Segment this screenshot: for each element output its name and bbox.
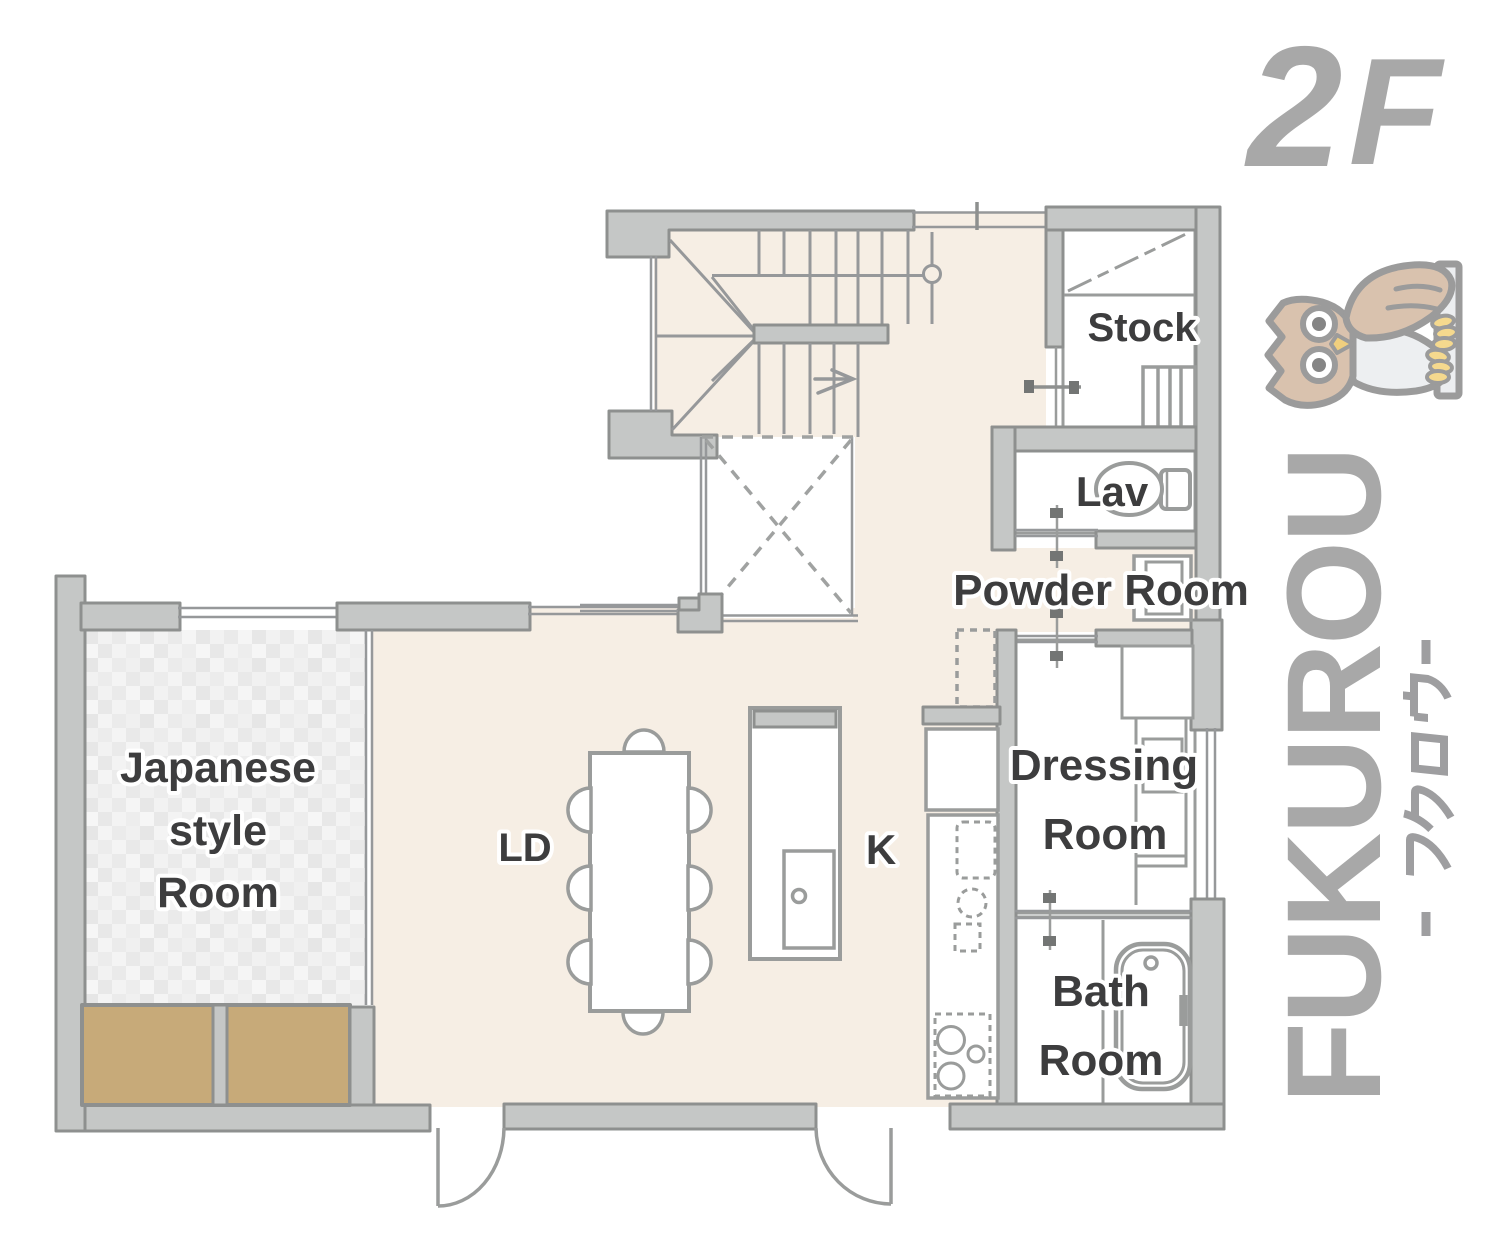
svg-text:Bath: Bath — [1052, 967, 1150, 1016]
svg-text:Dressing: Dressing — [1010, 741, 1198, 790]
svg-text:2F: 2F — [1244, 11, 1448, 203]
svg-text:FUKUROU: FUKUROU — [1260, 448, 1409, 1104]
svg-text:Powder Room: Powder Room — [953, 566, 1249, 615]
svg-text:Room: Room — [1039, 1036, 1164, 1085]
svg-text:Lav: Lav — [1076, 468, 1149, 515]
svg-text:K: K — [866, 826, 896, 873]
svg-text:Japanese: Japanese — [120, 744, 316, 792]
svg-text:LD: LD — [498, 826, 551, 870]
svg-text:Room: Room — [1043, 810, 1168, 859]
svg-text:style: style — [169, 807, 267, 855]
svg-text:Room: Room — [157, 869, 279, 917]
svg-text:Stock: Stock — [1088, 306, 1198, 350]
